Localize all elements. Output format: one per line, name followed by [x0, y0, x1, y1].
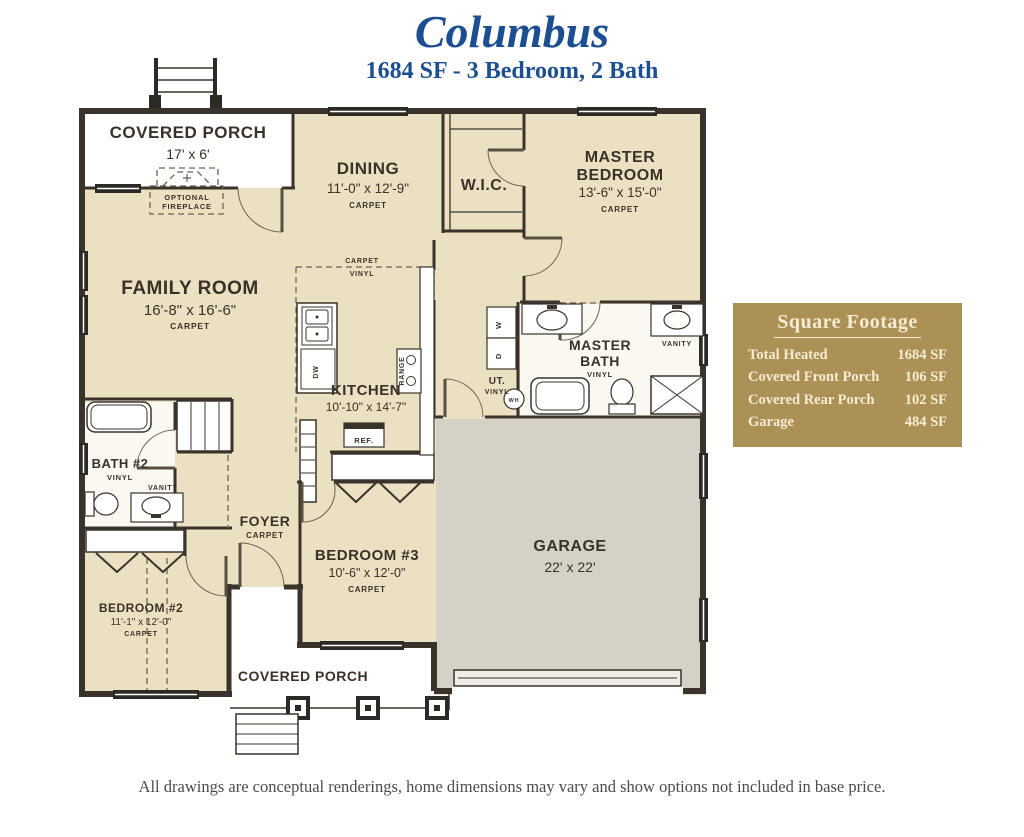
mb-toilet-bowl	[611, 379, 633, 405]
table-row: Covered Rear Porch 102 SF	[733, 389, 962, 411]
square-footage-title: Square Footage	[774, 311, 921, 338]
page: Columbus 1684 SF - 3 Bedroom, 2 Bath	[0, 0, 1024, 837]
label-fireplace-2: FIREPLACE	[162, 202, 212, 211]
b2-toilet-tank	[85, 492, 94, 516]
label-fireplace-1: OPTIONAL	[164, 193, 209, 202]
label-bedroom2-floor: CARPET	[124, 631, 158, 638]
label-rear-porch: COVERED PORCH	[110, 123, 267, 142]
label-range: RANGE	[399, 356, 406, 385]
label-bedroom3-floor: CARPET	[348, 585, 386, 594]
row-label: Covered Rear Porch	[748, 389, 874, 411]
mb-faucet-icon	[547, 305, 557, 309]
label-transition-carpet: CARPET	[345, 258, 379, 265]
sink-drain-1	[316, 316, 319, 319]
label-bedroom3: BEDROOM #3	[315, 547, 419, 564]
label-bedroom3-dims: 10'-6" x 12'-0"	[329, 566, 406, 580]
label-washer: W	[494, 321, 503, 329]
label-dining: DINING	[337, 159, 400, 178]
square-footage-rows: Total Heated 1684 SF Covered Front Porch…	[733, 344, 962, 434]
label-wic: W.I.C.	[461, 177, 508, 194]
label-front-porch: COVERED PORCH	[238, 668, 368, 684]
row-label: Covered Front Porch	[748, 366, 879, 388]
label-mb-vanity: VANITY	[662, 341, 692, 348]
bedroom3-closet	[332, 454, 434, 480]
label-dishwasher: DW	[313, 365, 320, 378]
label-dining-floor: CARPET	[349, 201, 387, 210]
row-label: Garage	[748, 411, 794, 433]
label-kitchen-dims: 10'-10" x 14'-7"	[326, 400, 406, 414]
bedroom2-closet	[86, 530, 184, 552]
label-masterbath-floor: VINYL	[587, 370, 613, 379]
label-refrigerator: REF.	[354, 436, 373, 445]
label-master-1: MASTER	[585, 149, 656, 166]
label-family: FAMILY ROOM	[121, 278, 258, 299]
label-garage: GARAGE	[533, 538, 606, 555]
label-family-dims: 16'-8" x 16'-6"	[144, 302, 236, 319]
label-garage-dims: 22' x 22'	[544, 559, 595, 575]
mb-toilet-tank	[609, 404, 635, 414]
porch-column	[356, 696, 380, 720]
table-row: Covered Front Porch 106 SF	[733, 366, 962, 388]
row-value: 1684 SF	[897, 344, 947, 366]
label-foyer-floor: CARPET	[246, 531, 284, 540]
label-masterbath-2: BATH	[580, 353, 620, 369]
mb-tub	[531, 378, 589, 414]
row-value: 106 SF	[905, 366, 947, 388]
label-b2-vanity: VANITY	[148, 485, 178, 492]
label-utility-floor: VINYL	[485, 389, 510, 396]
label-bath2-floor: VINYL	[107, 473, 133, 482]
label-bedroom2: BEDROOM #2	[99, 601, 183, 615]
label-dryer: D	[494, 353, 503, 359]
row-value: 102 SF	[905, 389, 947, 411]
square-footage-header: Square Footage	[733, 303, 962, 338]
label-foyer: FOYER	[240, 513, 291, 529]
label-transition-vinyl: VINYL	[350, 271, 375, 278]
b2-faucet-icon	[151, 514, 161, 518]
label-family-floor: CARPET	[170, 321, 210, 331]
label-master-2: BEDROOM	[576, 167, 663, 184]
label-kitchen: KITCHEN	[331, 382, 401, 399]
label-bath2: BATH #2	[92, 456, 149, 471]
row-label: Total Heated	[748, 344, 828, 366]
label-bedroom2-dims: 11'-1" x 12'-0"	[111, 617, 172, 628]
porch-column	[425, 696, 449, 720]
table-row: Garage 484 SF	[733, 411, 962, 433]
table-row: Total Heated 1684 SF	[733, 344, 962, 366]
mb-vanity-faucet-icon	[672, 305, 682, 309]
label-water-heater: WH	[509, 398, 520, 404]
square-footage-panel: Square Footage Total Heated 1684 SF Cove…	[733, 303, 962, 447]
label-master-dims: 13'-6" x 15'-0"	[578, 185, 661, 200]
label-utility: UT.	[489, 376, 506, 387]
b2-tub	[87, 402, 151, 432]
row-value: 484 SF	[905, 411, 947, 433]
kitchen-counter	[420, 267, 434, 455]
label-rear-porch-dims: 17' x 6'	[166, 146, 209, 162]
label-master-floor: CARPET	[601, 205, 639, 214]
garage-door-opening	[452, 686, 683, 696]
label-masterbath-1: MASTER	[569, 337, 631, 353]
sink-drain-2	[316, 333, 319, 336]
rear-steps	[149, 58, 222, 108]
disclaimer-text: All drawings are conceptual renderings, …	[0, 777, 1024, 797]
label-dining-dims: 11'-0" x 12'-9"	[327, 181, 409, 196]
b2-toilet-bowl	[94, 493, 118, 515]
refrigerator-top	[344, 423, 384, 429]
